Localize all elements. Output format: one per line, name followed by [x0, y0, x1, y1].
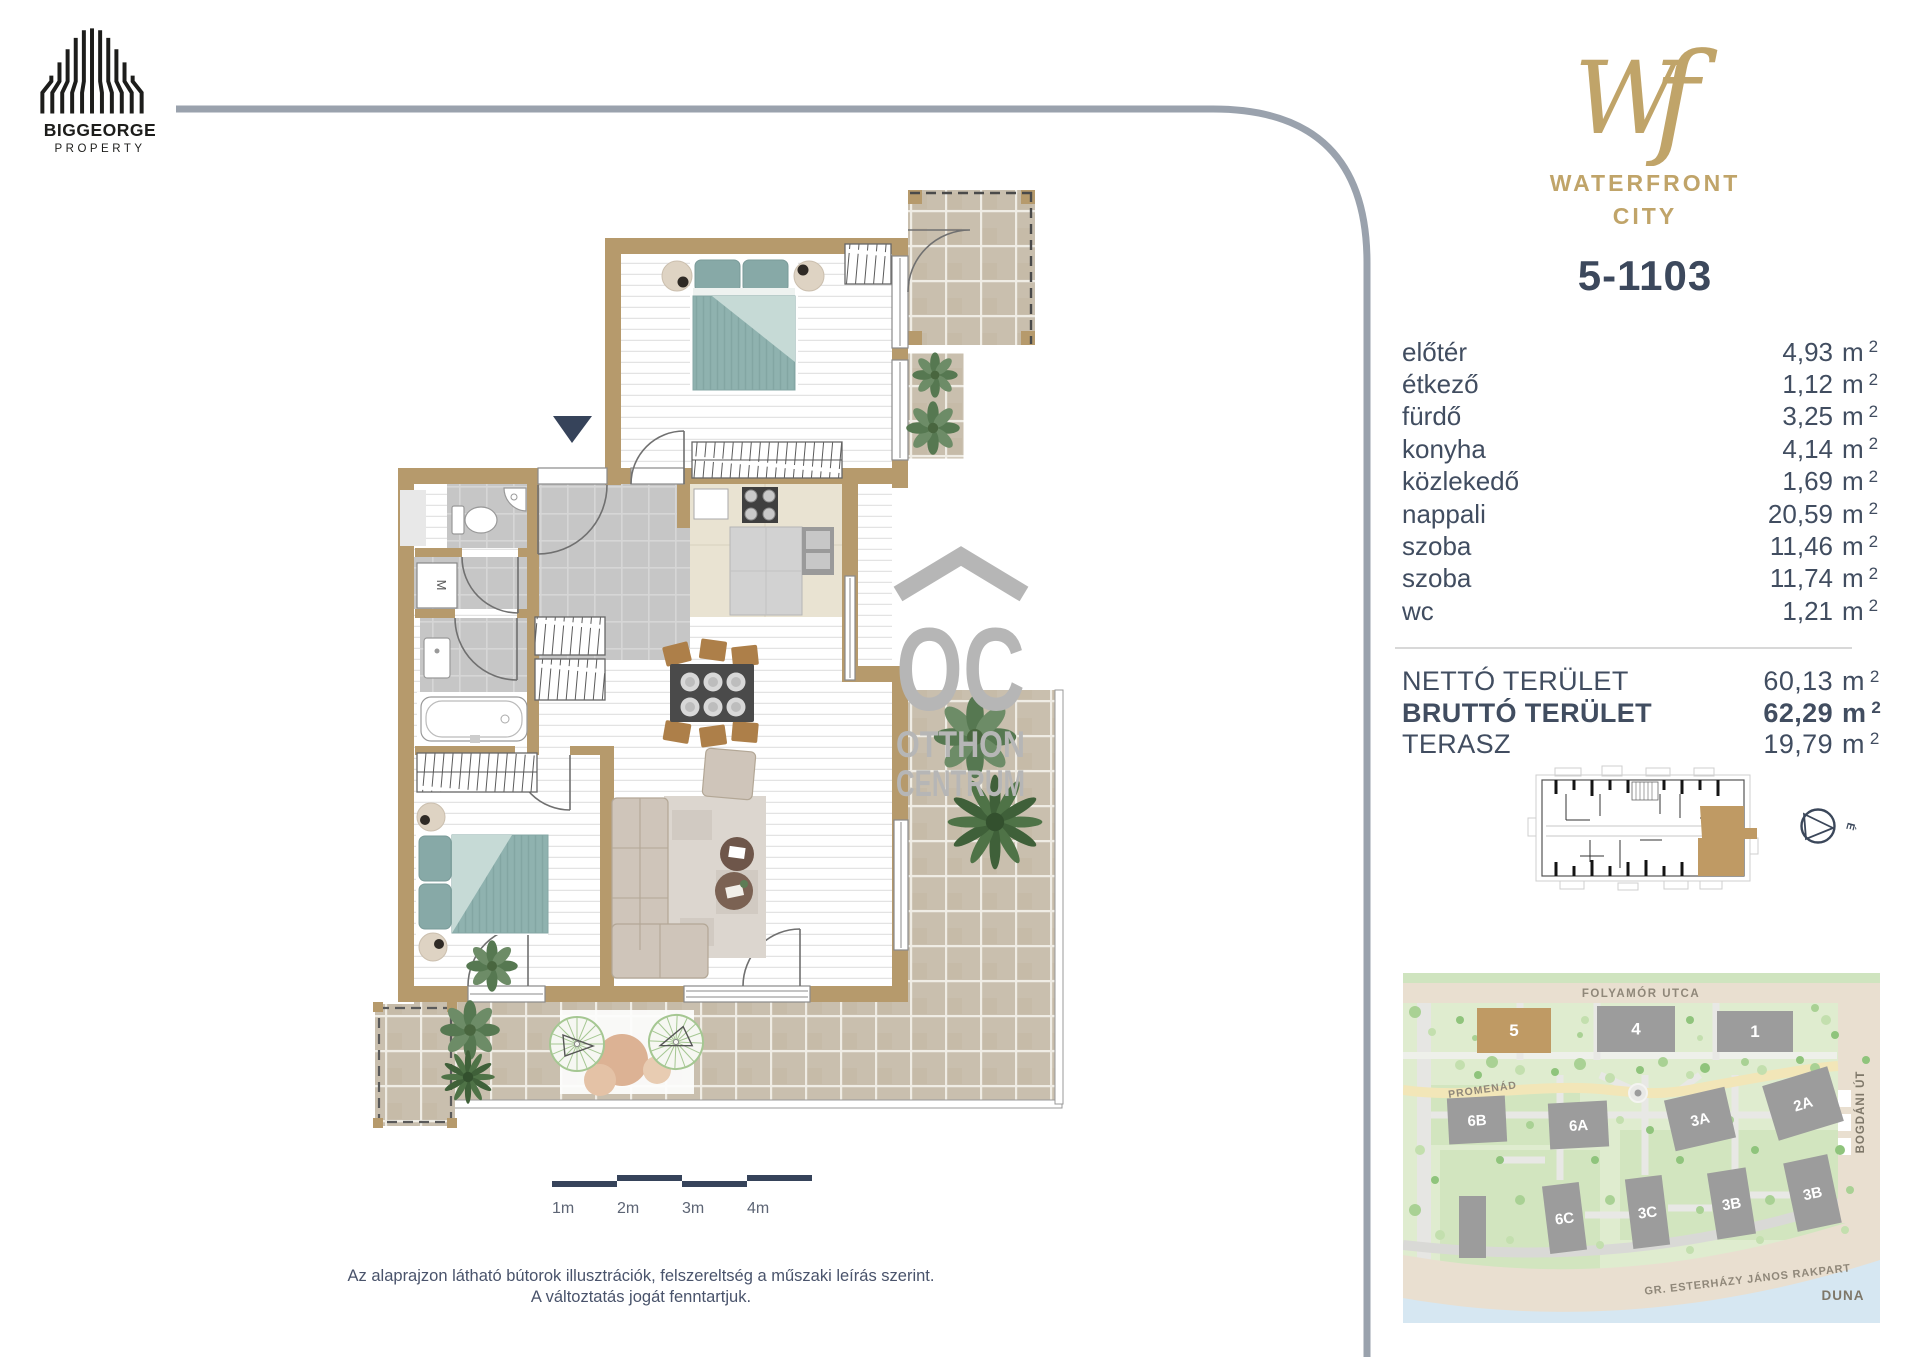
area-row-label: étkező	[1402, 369, 1479, 400]
area-row-value: 20,59	[1768, 499, 1833, 530]
disclaimer: Az alaprajzon látható bútorok illusztrác…	[241, 1266, 1041, 1308]
map-building-label: 5	[1509, 1021, 1518, 1040]
watermark-abbr: OC	[896, 604, 1025, 736]
wicker-chair	[550, 1017, 604, 1071]
map-building-label: 6A	[1569, 1117, 1589, 1135]
developer-name: BIGGEORGE	[40, 120, 160, 141]
street-label-top: FOLYAMÓR UTCA	[1582, 987, 1700, 1000]
nightstand	[662, 261, 692, 291]
watermark-roof-icon	[898, 556, 1024, 594]
project-header: W f WATERFRONT CITY 5-1103	[1475, 34, 1815, 300]
toilet	[452, 506, 497, 534]
area-row-label: NETTÓ TERÜLET	[1402, 666, 1629, 697]
area-row-label: konyha	[1402, 434, 1486, 465]
area-row-unit: m2	[1842, 499, 1888, 530]
entrance-marker-icon	[553, 416, 592, 443]
map-building: 1	[1717, 1011, 1793, 1052]
watermark: OC OTTHON CENTRUM	[896, 556, 1025, 804]
disclaimer-line2: A változtatás jogát fenntartjuk.	[241, 1287, 1041, 1308]
area-row-label: előtér	[1402, 337, 1467, 368]
map-building: 6B	[1447, 1096, 1507, 1145]
area-row-unit: m2	[1842, 337, 1888, 368]
area-row-unit: m2	[1842, 596, 1888, 627]
terrace-lounge	[550, 1007, 711, 1096]
floor-plan: M	[370, 180, 1070, 1220]
map-building	[1459, 1196, 1486, 1258]
compass-north-label: É	[1843, 821, 1857, 831]
map-building-label: 4	[1631, 1020, 1641, 1039]
scale-bar: 1m 2m 3m 4m	[552, 1175, 812, 1217]
scale-label: 4m	[747, 1200, 769, 1217]
map-building-label: 6C	[1554, 1209, 1575, 1228]
street-label-river: DUNA	[1822, 1288, 1865, 1303]
map-building-highlighted: 5	[1477, 1008, 1551, 1053]
totals-table: NETTÓ TERÜLET 60,13 m2 BRUTTÓ TERÜLET 62…	[1402, 666, 1888, 760]
shaft	[400, 490, 426, 546]
area-row-label: nappali	[1402, 499, 1486, 530]
area-row-unit: m2	[1842, 466, 1888, 497]
area-row-value: 60,13	[1763, 666, 1833, 697]
project-name-line2: CITY	[1475, 203, 1815, 230]
area-row-label: szoba	[1402, 563, 1471, 594]
unit-id: 5-1103	[1475, 252, 1815, 300]
armchair	[702, 748, 756, 800]
area-row-unit: m2	[1842, 563, 1888, 594]
scale-label: 3m	[682, 1200, 704, 1217]
area-row: előtér 4,93 m2	[1402, 336, 1888, 368]
railing	[452, 1100, 1062, 1108]
area-row-unit: m2	[1842, 401, 1888, 432]
project-monogram-icon: W f	[1525, 34, 1765, 166]
area-row: szoba 11,46 m2	[1402, 530, 1888, 562]
area-row-label: BRUTTÓ TERÜLET	[1402, 698, 1652, 729]
disclaimer-line1: Az alaprajzon látható bútorok illusztrác…	[241, 1266, 1041, 1287]
developer-subtitle: PROPERTY	[40, 143, 160, 155]
area-row-unit: m2	[1842, 434, 1888, 465]
map-building-label: 6B	[1467, 1112, 1487, 1130]
totals-separator	[1395, 647, 1852, 649]
area-row-value: 1,69	[1782, 466, 1833, 497]
developer-logo: BIGGEORGE PROPERTY	[40, 22, 160, 155]
site-map: 5416B6A3A2A6C3C3B3B FOLYAMÓR UTCA PROMEN…	[1403, 973, 1880, 1323]
area-row-value: 11,46	[1770, 531, 1833, 562]
keyplan	[1528, 766, 1758, 890]
watermark-line2: CENTRUM	[896, 763, 1025, 804]
area-row: NETTÓ TERÜLET 60,13 m2	[1402, 666, 1888, 697]
scale-label: 1m	[552, 1200, 574, 1217]
area-row-value: 3,25	[1782, 401, 1833, 432]
area-row-unit: m2	[1842, 369, 1888, 400]
area-row-value: 11,74	[1770, 563, 1833, 594]
railing	[1055, 690, 1063, 1104]
washing-machine-label: M	[434, 580, 449, 591]
keyplan-unit-highlight	[1698, 806, 1757, 876]
map-roundabout	[1629, 1084, 1647, 1102]
area-row-label: fürdő	[1402, 401, 1461, 432]
terrace-top-right	[908, 190, 1035, 345]
nightstand	[794, 261, 824, 291]
area-row-label: TERASZ	[1402, 729, 1511, 760]
compass-icon: É	[1802, 810, 1858, 843]
area-row: közlekedő 1,69 m2	[1402, 466, 1888, 498]
area-row-label: közlekedő	[1402, 466, 1519, 497]
area-row-unit: m2	[1842, 698, 1888, 729]
area-row: étkező 1,12 m2	[1402, 368, 1888, 400]
dining-set	[662, 638, 759, 747]
map-building-label: 1	[1750, 1022, 1759, 1041]
bathtub	[421, 697, 527, 743]
area-row-unit: m2	[1842, 666, 1888, 697]
project-name-line1: WATERFRONT	[1475, 170, 1815, 197]
area-row: TERASZ 19,79 m2	[1402, 729, 1888, 760]
map-building: 6A	[1548, 1100, 1609, 1149]
area-row-value: 1,12	[1782, 369, 1833, 400]
area-row-value: 62,29	[1763, 698, 1833, 729]
area-row: konyha 4,14 m2	[1402, 433, 1888, 465]
map-building: 4	[1597, 1006, 1675, 1052]
svg-text:f: f	[1645, 34, 1718, 166]
watermark-line1: OTTHON	[896, 724, 1025, 765]
area-row-value: 4,93	[1782, 337, 1833, 368]
area-row-value: 19,79	[1763, 729, 1833, 760]
washing-machine: M	[417, 563, 457, 608]
area-row-unit: m2	[1842, 531, 1888, 562]
area-row: nappali 20,59 m2	[1402, 498, 1888, 530]
area-row-label: szoba	[1402, 531, 1471, 562]
area-row-label: wc	[1402, 596, 1434, 627]
area-row: fürdő 3,25 m2	[1402, 401, 1888, 433]
area-row: szoba 11,74 m2	[1402, 563, 1888, 595]
area-row-value: 1,21	[1782, 596, 1833, 627]
area-row: wc 1,21 m2	[1402, 595, 1888, 627]
bath-sink	[424, 638, 450, 678]
map-building-label: 3B	[1721, 1195, 1743, 1215]
street-label-right: BOGDÁNI ÚT	[1854, 1071, 1867, 1154]
map-building-label: 3C	[1637, 1203, 1658, 1222]
area-row-unit: m2	[1842, 729, 1888, 760]
terrace-side-left	[373, 1002, 457, 1128]
scale-label: 2m	[617, 1200, 639, 1217]
area-row: BRUTTÓ TERÜLET 62,29 m2	[1402, 697, 1888, 728]
room-area-table: előtér 4,93 m2 étkező 1,12 m2 fürdő 3,25…	[1402, 336, 1888, 628]
area-row-value: 4,14	[1782, 434, 1833, 465]
